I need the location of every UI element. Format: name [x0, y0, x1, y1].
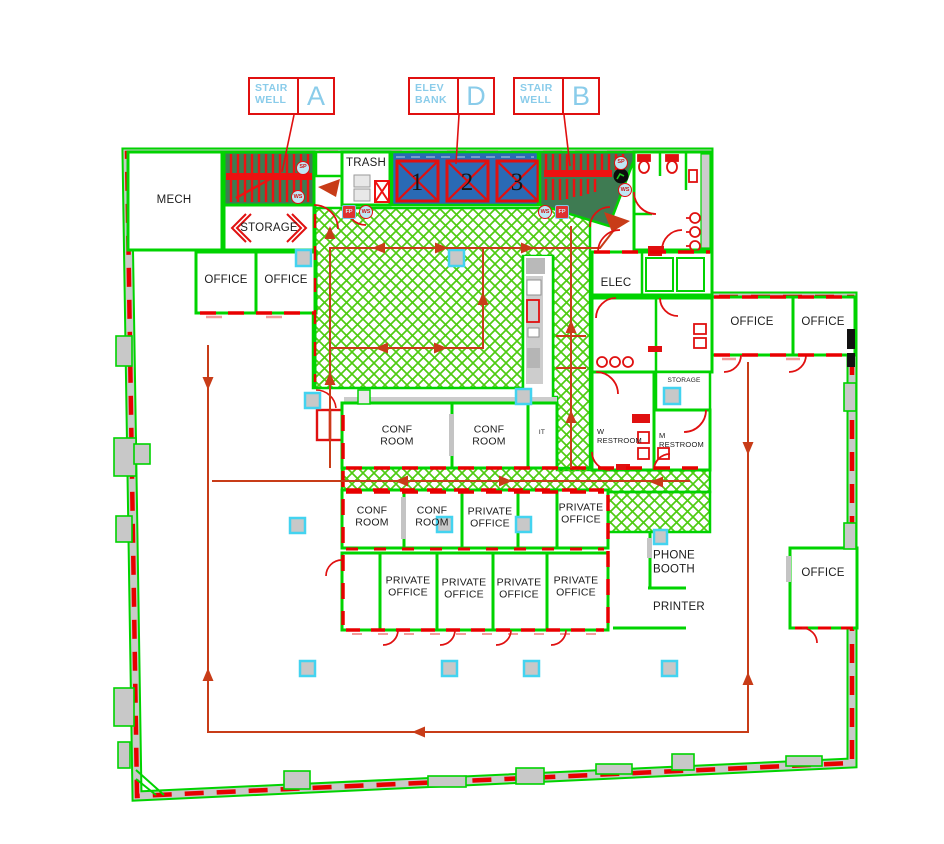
label-trash: TRASH — [346, 157, 386, 171]
restrooms-mid — [592, 298, 712, 372]
fire-protection-icon: FP — [555, 205, 569, 219]
water-source-icon: WS — [538, 205, 552, 219]
label-w-restroom: W RESTROOM — [597, 428, 642, 446]
label-office-b: OFFICE — [264, 274, 307, 288]
exit-sign-icon — [614, 169, 629, 184]
legend-stairwell-b-name: STAIR WELL — [515, 79, 562, 113]
label-mech: MECH — [157, 194, 192, 208]
label-private-office-4: PRIVATE OFFICE — [442, 577, 487, 602]
elevator-cab-2-number: 2 — [461, 169, 474, 197]
sprinkler-icon: SP — [296, 161, 310, 175]
label-conf-room-3: CONF ROOM — [355, 505, 388, 530]
label-private-office-6: PRIVATE OFFICE — [554, 575, 599, 600]
trash-bin — [354, 189, 370, 201]
label-private-office-1: PRIVATE OFFICE — [468, 506, 513, 531]
label-conf-room-2: CONF ROOM — [472, 424, 505, 449]
room-office-se — [786, 548, 857, 643]
sprinkler-icon: SP — [614, 156, 628, 170]
floor-plan: STAIR WELL A ELEV BANK D STAIR WELL B 1 … — [0, 0, 944, 844]
label-private-office-2: PRIVATE OFFICE — [559, 502, 604, 527]
legend-elev-bank-d-name: ELEV BANK — [410, 79, 457, 113]
label-phone-booth: PHONE BOOTH — [653, 549, 695, 576]
label-private-office-3: PRIVATE OFFICE — [386, 575, 431, 600]
water-source-icon: WS — [618, 183, 632, 197]
legend-stairwell-a: STAIR WELL A — [248, 77, 335, 115]
label-private-office-5: PRIVATE OFFICE — [497, 577, 542, 602]
label-conf-room-1: CONF ROOM — [380, 424, 413, 449]
label-office-e: OFFICE — [801, 567, 844, 581]
elevator-cab-3-number: 3 — [511, 169, 524, 197]
label-storage-top: STORAGE — [240, 222, 297, 236]
label-m-restroom: M RESTROOM — [659, 432, 704, 450]
restrooms-north — [634, 152, 712, 253]
label-printer: PRINTER — [653, 601, 705, 615]
elevator-cab-1-number: 1 — [411, 169, 424, 197]
legend-elev-bank-d-letter: D — [457, 79, 493, 113]
floor-plan-drawing — [0, 0, 944, 844]
water-source-icon: WS — [291, 190, 305, 204]
restroom-w — [592, 372, 654, 470]
label-storage-small: STORAGE — [667, 377, 700, 385]
label-office-a: OFFICE — [204, 274, 247, 288]
label-elec: ELEC — [601, 277, 632, 291]
legend-stairwell-b-letter: B — [562, 79, 598, 113]
legend-stairwell-b: STAIR WELL B — [513, 77, 600, 115]
legend-stairwell-a-letter: A — [297, 79, 333, 113]
vestibule — [316, 152, 342, 176]
legend-elev-bank-d: ELEV BANK D — [408, 77, 495, 115]
label-conf-room-4: CONF ROOM — [415, 505, 448, 530]
label-it-closet: IT — [539, 429, 545, 437]
shaft — [701, 154, 710, 248]
legend-stairwell-a-name: STAIR WELL — [250, 79, 297, 113]
fire-protection-icon: FP — [342, 205, 356, 219]
label-office-d: OFFICE — [801, 316, 844, 330]
pantry-counter — [523, 256, 553, 388]
label-office-c: OFFICE — [730, 316, 773, 330]
water-source-icon: WS — [359, 205, 373, 219]
trash-bin — [354, 175, 370, 187]
